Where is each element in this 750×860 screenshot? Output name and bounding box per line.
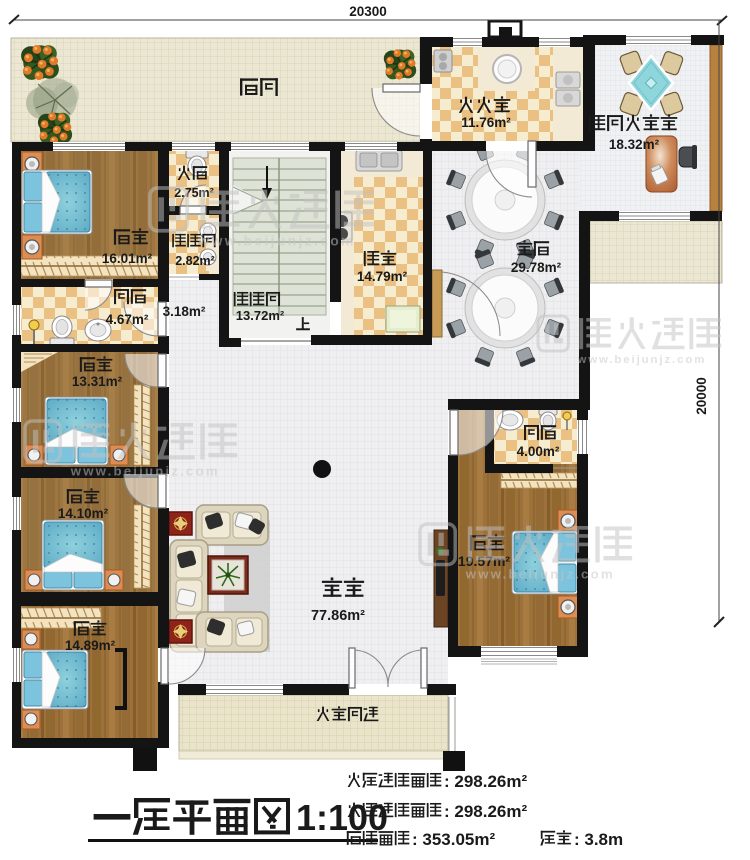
svg-text:13.31m²: 13.31m²	[72, 374, 123, 389]
svg-text:13.72m²: 13.72m²	[236, 308, 285, 323]
svg-text:14.79m²: 14.79m²	[357, 269, 408, 284]
svg-text:14.89m²: 14.89m²	[65, 638, 116, 653]
svg-text:14.10m²: 14.10m²	[58, 506, 109, 521]
svg-text:29.78m²: 29.78m²	[511, 260, 562, 275]
svg-text:: 298.26m²: : 298.26m²	[444, 802, 527, 821]
svg-text:3.18m²: 3.18m²	[163, 304, 206, 319]
svg-text:18.32m²: 18.32m²	[609, 137, 660, 152]
svg-text:77.86m²: 77.86m²	[311, 608, 365, 624]
svg-text:www.beijunjz.com: www.beijunjz.com	[465, 567, 615, 582]
svg-text:20300: 20300	[349, 4, 387, 19]
svg-text:: 3.8m: : 3.8m	[574, 830, 623, 849]
svg-text:20000: 20000	[694, 377, 709, 415]
svg-text:: 353.05m²: : 353.05m²	[412, 830, 495, 849]
svg-text:4.00m²: 4.00m²	[517, 444, 560, 459]
svg-text:www.beijunjz.com: www.beijunjz.com	[577, 354, 707, 366]
svg-text:: 298.26m²: : 298.26m²	[444, 772, 527, 791]
svg-text:16.01m²: 16.01m²	[102, 251, 153, 266]
svg-text:www.beijunjz.com: www.beijunjz.com	[70, 464, 220, 479]
svg-text:11.76m²: 11.76m²	[461, 115, 511, 130]
svg-text:4.67m²: 4.67m²	[106, 312, 149, 327]
svg-text:2.82m²: 2.82m²	[175, 254, 215, 268]
svg-text:www.beijunjz.com: www.beijunjz.com	[197, 233, 356, 249]
